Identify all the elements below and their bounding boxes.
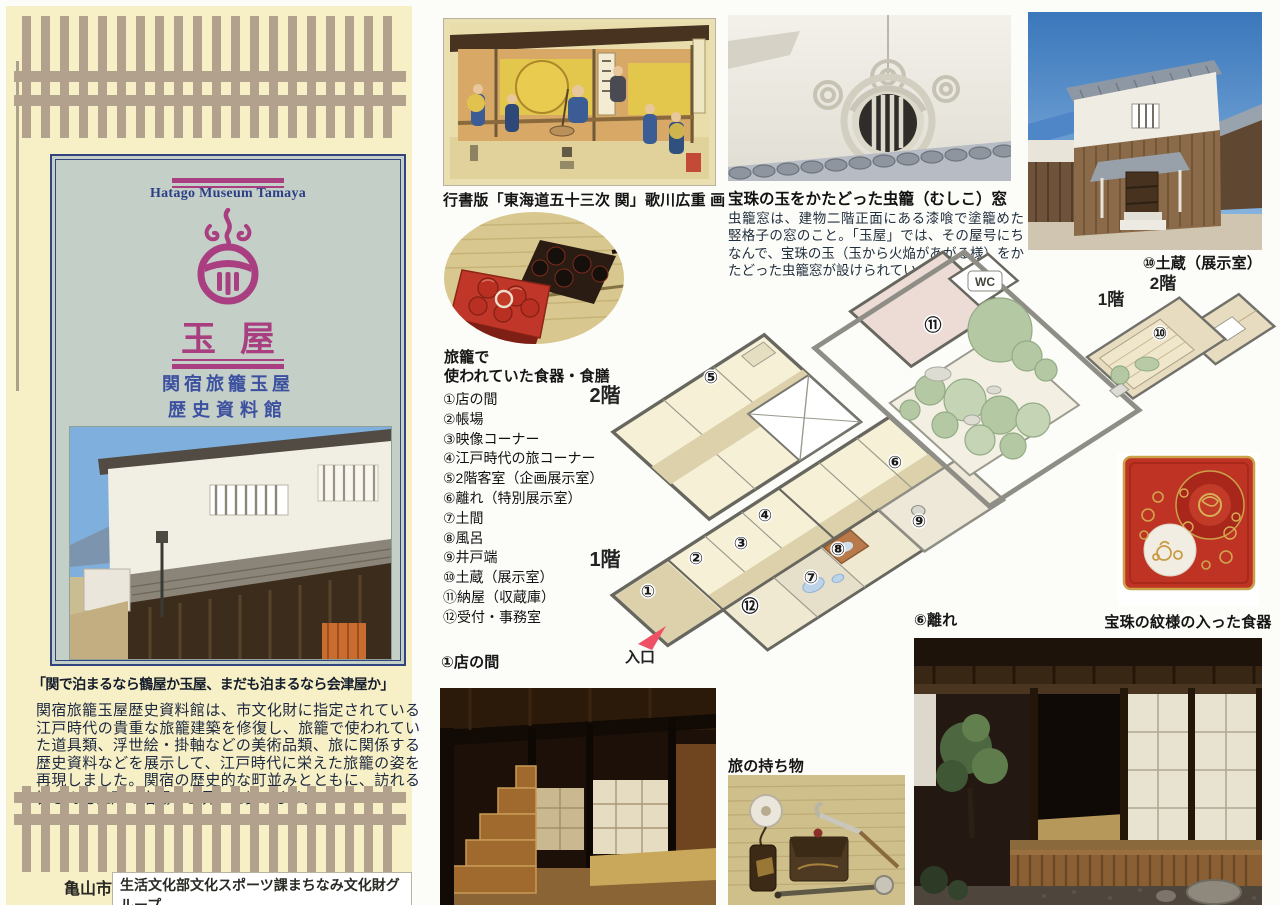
room-list-item: ③映像コーナー <box>443 430 603 450</box>
publisher-department: 生活文化部文化スポーツ課まちなみ文化財グループ <box>112 872 412 905</box>
plan-mark-5: ⑤ <box>704 368 718 387</box>
travel-belongings-photo <box>728 775 905 905</box>
room-list-item: ⑥離れ（特別展示室） <box>443 489 603 509</box>
kura-floor1-label: 1階 <box>1098 290 1124 309</box>
plan-mark-11: ⑪ <box>925 315 942 335</box>
misenoma-caption: ①店の間 <box>441 651 500 672</box>
brochure-page: Hatago Museum Tamaya 玉屋 <box>0 0 1280 905</box>
entrance-arrow-icon <box>638 626 666 650</box>
mushiko-window-photo <box>728 15 1011 181</box>
plan-mark-2: ② <box>689 549 703 568</box>
misenoma-interior-photo <box>440 688 716 905</box>
museum-name-en: Hatago Museum Tamaya <box>52 186 404 202</box>
room-list-item: ⑦土間 <box>443 509 603 529</box>
belongings-caption: 旅の持ち物 <box>728 755 804 776</box>
plan-mark-7: ⑦ <box>804 568 818 587</box>
tray-caption: 旅籠で 使われていた食器・食膳 <box>444 348 610 386</box>
meal-tray-oval-photo <box>444 212 624 344</box>
quote-text: 「関で泊まるなら鶴屋か玉屋、まだも泊まるなら会津屋か」 <box>32 674 418 694</box>
hanare-photo <box>914 638 1262 905</box>
kura-floor2-label: 2階 <box>1150 274 1176 293</box>
museum-subtitle-1: 関宿旅籠玉屋 <box>52 370 404 396</box>
plan-mark-1: ① <box>641 582 655 601</box>
left-panel: Hatago Museum Tamaya 玉屋 <box>6 6 412 905</box>
room-list-item: ⑫受付・事務室 <box>443 608 603 628</box>
magenta-rule-bottom <box>172 359 284 369</box>
room-list-item: ①店の間 <box>443 390 603 410</box>
plan-mark-12: ⑫ <box>742 596 759 616</box>
room-list: ①店の間 ②帳場 ③映像コーナー ④江戸時代の旅コーナー ⑤2階客室（企画展示室… <box>443 390 603 628</box>
tray-caption-line1: 旅籠で <box>444 348 610 367</box>
ukiyoe-print-photo <box>443 18 716 186</box>
plan-mark-8: ⑧ <box>831 540 845 559</box>
room-list-item: ⑨井戸端 <box>443 548 603 568</box>
title-card: Hatago Museum Tamaya 玉屋 <box>50 154 406 666</box>
mushiko-body: 虫籠窓は、建物二階正面にある漆喰で塗籠めた竪格子の窓のこと。「玉屋」では、その屋… <box>728 210 1024 280</box>
plan-room-numbers: ⑤ ① ② ③ ④ ⑥ ⑦ ⑧ ⑨ ⑪ ⑫ ⑩ <box>641 315 1167 616</box>
plan-mark-10: ⑩ <box>1153 324 1167 343</box>
plan-garden-stones <box>925 367 1001 425</box>
hatago-exterior-photo <box>69 426 392 660</box>
museum-subtitle-2: 歴史資料館 <box>52 396 404 422</box>
treasure-jewel-flame-icon <box>190 208 266 308</box>
room-list-item: ⑧風呂 <box>443 529 603 549</box>
plan-floor1-back <box>723 510 923 650</box>
entrance-label: 入口 <box>625 649 655 666</box>
plan-garden <box>890 333 1079 476</box>
plan-mark-6: ⑥ <box>888 453 902 472</box>
plan-mark-9: ⑨ <box>912 512 926 531</box>
room-list-item: ④江戸時代の旅コーナー <box>443 449 603 469</box>
plan-boundary-wall <box>815 252 1139 506</box>
plan-kura-shrub <box>1135 357 1159 371</box>
mushiko-heading: 宝珠の玉をかたどった虫籠（むしこ）窓 <box>728 187 1007 209</box>
plan-floor2 <box>613 335 860 519</box>
plan-floor1-front <box>612 417 945 645</box>
jewel-tableware-photo <box>1118 453 1259 606</box>
plan-kura-floor2 <box>1180 294 1274 364</box>
plan-well <box>909 503 928 518</box>
kura-caption: ⑩土蔵（展示室） <box>1060 252 1262 273</box>
room-list-item: ⑤2階客室（企画展示室） <box>443 469 603 489</box>
museum-title: 玉屋 <box>52 311 404 362</box>
plan-mark-4: ④ <box>758 506 772 525</box>
room-list-item: ⑩土蔵（展示室） <box>443 568 603 588</box>
kura-storehouse-photo <box>1028 12 1262 250</box>
hanare-caption: ⑥離れ <box>914 609 957 630</box>
plan-courtyard <box>879 459 1005 552</box>
lattice-pattern-bottom <box>22 786 396 872</box>
jewel-tableware-caption: 宝珠の紋様の入った食器 <box>1102 611 1274 632</box>
plan-kura-floor1 <box>1079 298 1226 404</box>
plan-garden-trees <box>900 298 1129 459</box>
publisher-city: 亀山市 <box>64 875 112 899</box>
room-list-item: ②帳場 <box>443 410 603 430</box>
ukiyoe-caption: 行書版「東海道五十三次 関」歌川広重 画 <box>443 189 725 210</box>
tray-caption-line2: 使われていた食器・食膳 <box>444 367 610 386</box>
plan-mark-3: ③ <box>734 534 748 553</box>
room-list-item: ⑪納屋（収蔵庫） <box>443 588 603 608</box>
lattice-pattern-top <box>22 16 396 138</box>
scan-fold-line <box>16 61 19 391</box>
